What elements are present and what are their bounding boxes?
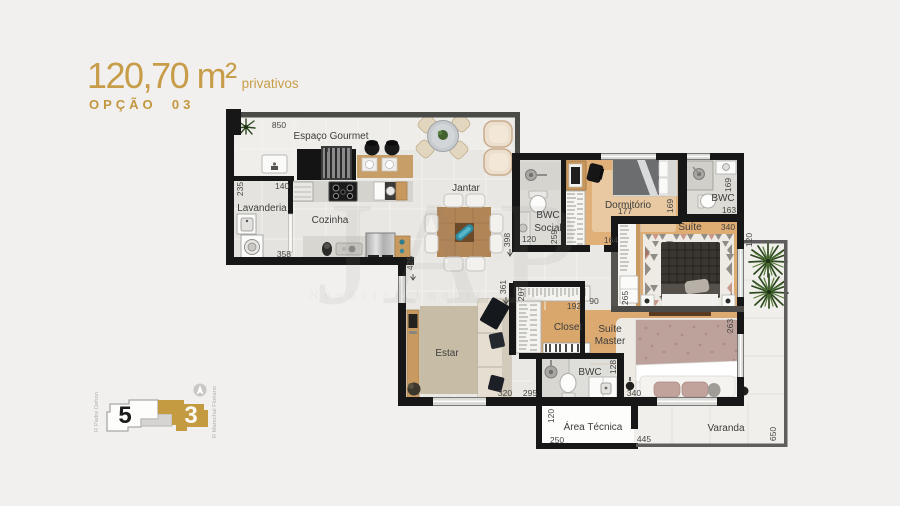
svg-text:163: 163 (722, 205, 736, 215)
svg-text:120: 120 (744, 233, 754, 247)
svg-text:169: 169 (723, 178, 733, 192)
svg-text:650: 650 (768, 427, 778, 441)
svg-text:259: 259 (549, 230, 559, 244)
svg-text:Suíte: Suíte (678, 222, 702, 233)
svg-text:358: 358 (277, 249, 291, 259)
svg-text:BWC: BWC (536, 210, 559, 221)
svg-text:425: 425 (405, 256, 415, 270)
svg-text:445: 445 (637, 434, 651, 444)
svg-text:177: 177 (618, 206, 632, 216)
svg-text:Área Técnica: Área Técnica (564, 420, 623, 433)
svg-text:340: 340 (627, 388, 641, 398)
svg-text:164: 164 (604, 235, 618, 245)
svg-text:320: 320 (498, 388, 512, 398)
svg-text:120: 120 (546, 409, 556, 423)
svg-text:JAP: JAP (317, 172, 588, 336)
svg-text:128: 128 (608, 360, 618, 374)
svg-text:Varanda: Varanda (707, 423, 745, 434)
svg-text:Suíte: Suíte (598, 324, 622, 335)
svg-text:R Padre Dehon: R Padre Dehon (94, 392, 100, 432)
svg-text:265: 265 (620, 291, 630, 305)
svg-text:850: 850 (272, 120, 286, 130)
svg-text:3: 3 (184, 402, 197, 429)
svg-text:Jantar: Jantar (452, 183, 480, 194)
svg-text:169: 169 (665, 199, 675, 213)
svg-text:Negócios Imobiliários: Negócios Imobiliários (309, 287, 551, 302)
svg-text:140: 140 (275, 181, 289, 191)
svg-text:192: 192 (567, 301, 581, 311)
svg-text:235: 235 (235, 182, 245, 196)
svg-text:340: 340 (721, 222, 735, 232)
svg-text:398: 398 (502, 233, 512, 247)
svg-text:Lavanderia: Lavanderia (237, 203, 287, 214)
svg-text:Estar: Estar (435, 348, 459, 359)
svg-text:295: 295 (523, 388, 537, 398)
svg-text:Espaço Gourmet: Espaço Gourmet (293, 131, 368, 142)
svg-text:120: 120 (522, 234, 536, 244)
svg-text:361: 361 (498, 280, 508, 294)
svg-text:R Marechal Floriano: R Marechal Floriano (212, 386, 218, 438)
svg-text:250: 250 (550, 435, 564, 445)
svg-text:Cozinha: Cozinha (312, 215, 349, 226)
svg-text:5: 5 (118, 402, 131, 429)
svg-text:90: 90 (589, 296, 599, 306)
svg-text:Closet: Closet (554, 322, 583, 333)
svg-text:263: 263 (725, 319, 735, 333)
svg-text:BWC: BWC (578, 367, 601, 378)
svg-text:Master: Master (595, 336, 626, 347)
svg-text:BWC: BWC (711, 193, 734, 204)
svg-text:207: 207 (516, 287, 526, 301)
